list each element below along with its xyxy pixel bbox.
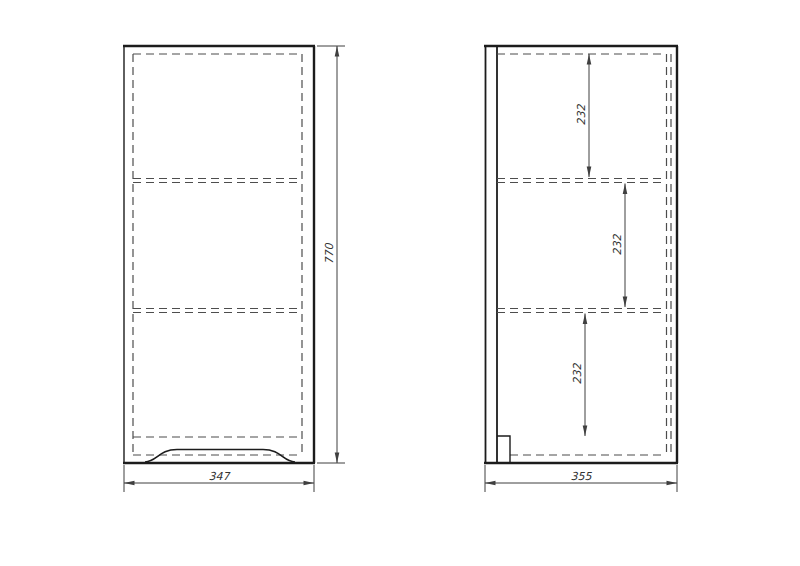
dim-label-depth: 355 (571, 470, 593, 483)
dim-label-width: 347 (209, 470, 232, 483)
front-view: 347 770 (123, 46, 345, 492)
dim-label-section-3: 232 (571, 363, 584, 385)
dimension-section-1: 232 (575, 54, 589, 177)
dimension-height-770: 770 (317, 46, 345, 463)
dimension-depth-355: 355 (485, 465, 677, 492)
dimension-section-3: 232 (571, 314, 585, 437)
dim-label-section-1: 232 (575, 104, 588, 126)
dim-label-section-2: 232 (611, 234, 624, 256)
dimension-section-2: 232 (611, 184, 625, 308)
handle-recess-curve (145, 450, 295, 463)
dimension-width-347: 347 (124, 465, 314, 492)
side-view: 232 232 232 355 (484, 46, 678, 492)
technical-drawing-canvas: 347 770 232 (0, 0, 800, 566)
dim-label-height: 770 (323, 243, 336, 265)
cabinet-drawing-svg: 347 770 232 (0, 0, 800, 566)
bottom-rail-notch (497, 436, 510, 463)
